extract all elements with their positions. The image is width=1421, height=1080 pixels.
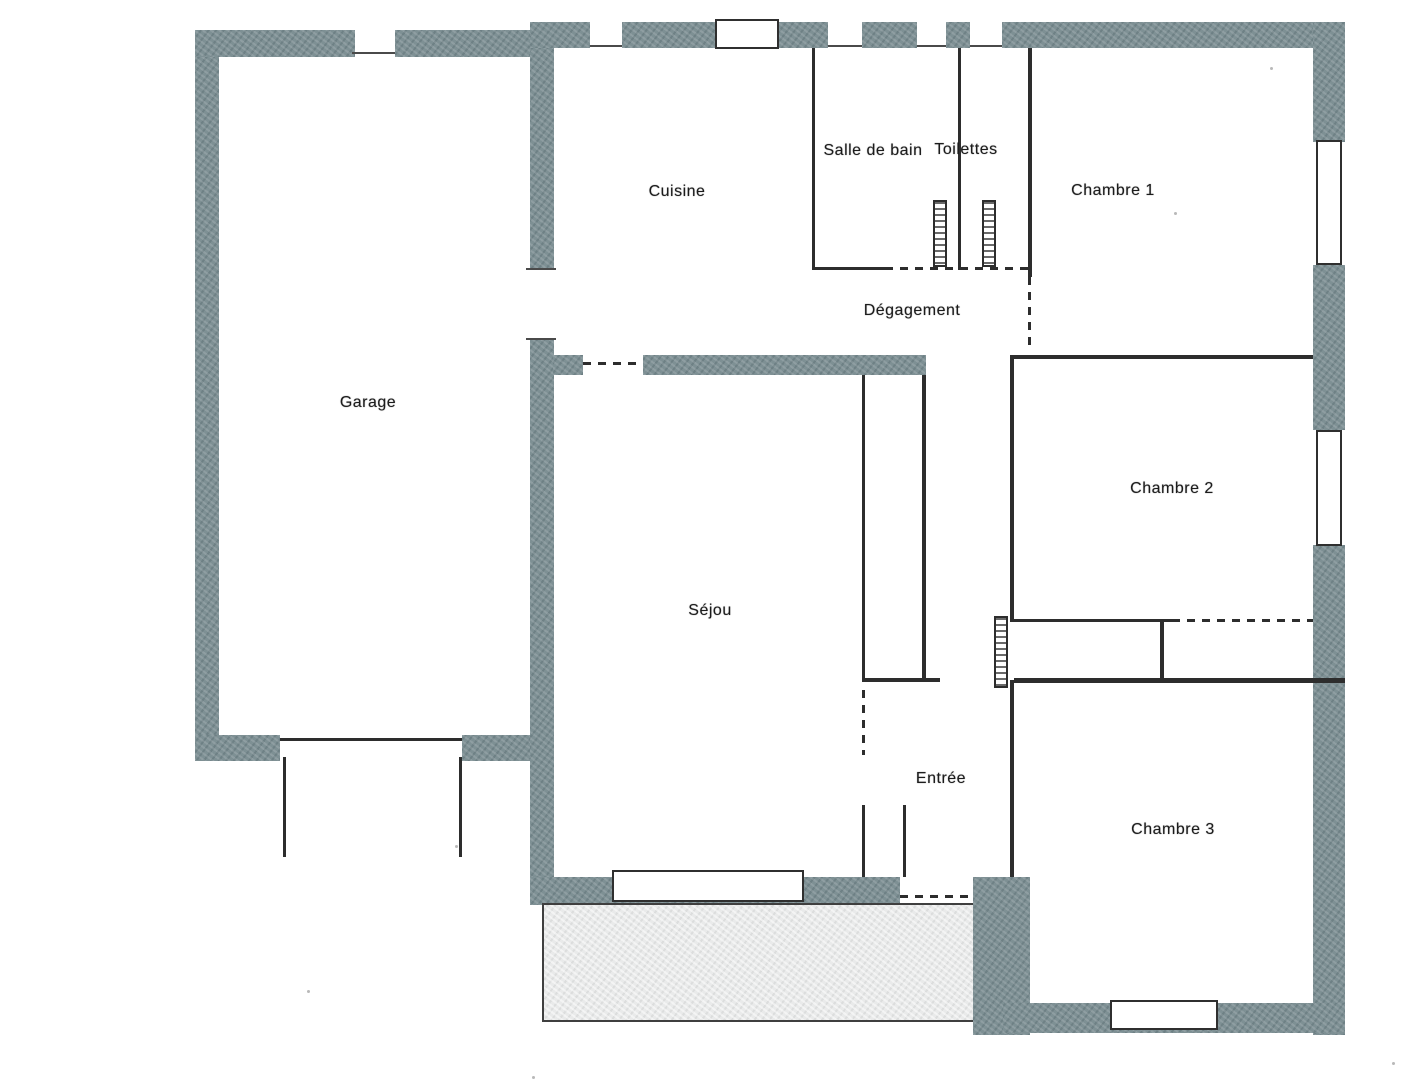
wall-segment [195, 30, 219, 760]
window-sill [590, 45, 622, 47]
closet-top-dashed [1172, 619, 1313, 622]
wall-chambre2-left [1010, 359, 1014, 622]
window-sill [970, 45, 1002, 47]
window [715, 19, 779, 49]
window [1316, 430, 1342, 546]
room-label-sejour: Séjou [688, 602, 731, 620]
door-leaf [933, 200, 947, 267]
terrace [542, 903, 1013, 1022]
scan-speck [307, 990, 310, 993]
wall-segment [622, 22, 717, 48]
door-leaf [982, 200, 996, 267]
wall-chambre1-chambre2 [1010, 355, 1313, 359]
wall-entree-jamb [903, 805, 906, 877]
wall-segment [1313, 22, 1345, 142]
window [612, 870, 804, 902]
window-sill [352, 52, 395, 54]
door-opening [885, 267, 1030, 270]
wall-segment [777, 22, 828, 48]
window-sill [828, 45, 862, 47]
closet-bottom [1014, 678, 1345, 683]
duct-right [922, 375, 926, 680]
room-label-cuisine: Cuisine [649, 183, 706, 201]
scan-speck [532, 1076, 535, 1079]
door-opening [862, 690, 865, 755]
wall-segment [530, 22, 590, 48]
scan-speck [1174, 212, 1177, 215]
door-jamb [526, 338, 556, 340]
window [1316, 140, 1342, 265]
wall-sdb-bottom [815, 267, 885, 270]
wall-segment [946, 22, 970, 48]
room-label-chambre-2: Chambre 2 [1130, 480, 1214, 498]
wall-cuisine-sdb [812, 48, 815, 270]
door-opening [1028, 277, 1031, 350]
wall-chambre3-left [1010, 680, 1014, 877]
garage-door-head [280, 738, 462, 741]
wall-segment [530, 30, 554, 270]
door-leaf [994, 616, 1008, 688]
scan-speck [455, 845, 458, 848]
closet-top [1014, 619, 1172, 622]
wall-segment [195, 735, 280, 761]
room-label-degagement: Dégagement [864, 302, 961, 320]
wall-sdb-toilettes [958, 48, 961, 270]
wall-chambre1-left [1028, 48, 1032, 277]
room-label-chambre-1: Chambre 1 [1071, 182, 1155, 200]
room-label-toilettes: Toilettes [934, 141, 997, 159]
door-opening [583, 362, 643, 365]
room-label-garage: Garage [340, 394, 396, 412]
driveway-line [459, 757, 462, 857]
floor-plan: Garage Cuisine Salle de bain Toilettes C… [0, 0, 1421, 1080]
scan-speck [1392, 1062, 1395, 1065]
door-jamb [526, 268, 556, 270]
entry-threshold [900, 895, 973, 898]
window [1110, 1000, 1218, 1030]
wall-segment [530, 340, 554, 877]
room-label-salle-de-bain: Salle de bain [823, 142, 922, 160]
wall-segment [1313, 545, 1345, 1035]
wall-segment [195, 30, 355, 57]
wall-segment [1313, 265, 1345, 430]
wall-segment [862, 22, 917, 48]
wall-segment [395, 30, 545, 57]
duct-bottom [862, 678, 940, 682]
window-sill [917, 45, 946, 47]
wall-segment [643, 355, 926, 375]
closet-divider [1160, 619, 1164, 682]
room-label-chambre-3: Chambre 3 [1131, 821, 1215, 839]
duct-left [862, 375, 865, 680]
wall-segment [553, 355, 583, 375]
driveway-line [283, 757, 286, 857]
scan-speck [1270, 67, 1273, 70]
wall-segment [1002, 22, 1345, 48]
room-label-entree: Entrée [916, 770, 966, 788]
wall-entree-left [862, 805, 865, 877]
